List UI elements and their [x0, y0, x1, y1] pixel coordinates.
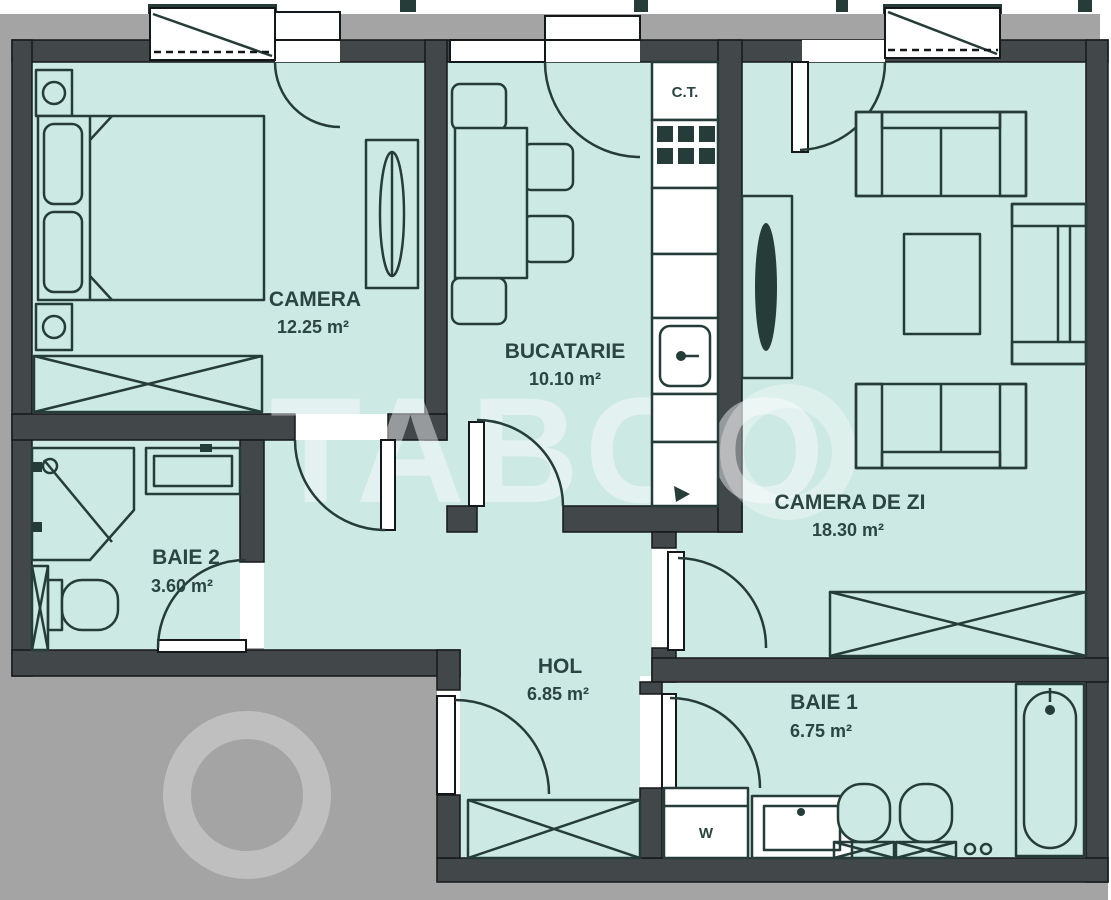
room-label-camera: CAMERA	[269, 288, 361, 311]
washing-machine	[664, 788, 748, 858]
entrance-door-leaf	[437, 696, 455, 794]
baie1-toilet-bowl	[838, 784, 890, 842]
stove-burner-5	[678, 148, 694, 164]
camera-door-gap	[275, 40, 340, 62]
stove-burner-4	[657, 148, 673, 164]
facade-nub-3	[836, 0, 848, 12]
kitchen-chair-right-2	[523, 216, 573, 262]
wall-hol-living-upper	[652, 532, 676, 548]
wall-baie2-bottom	[12, 650, 460, 676]
wall-corridor-left-upper	[437, 650, 460, 690]
facade-nub-1	[400, 0, 416, 12]
wall-living-baie1	[652, 658, 1108, 682]
coffee-table	[904, 234, 980, 334]
baie2-toilet-tank	[48, 580, 62, 630]
room-label-baie1: BAIE 1	[790, 691, 858, 714]
floor-plan: TABOO	[0, 0, 1111, 900]
kitchen-window	[450, 40, 545, 62]
tv-symbol	[755, 223, 777, 351]
facade-nub-2	[634, 0, 648, 12]
room-area-camera-de-zi: 18.30 m²	[812, 520, 884, 540]
kitchen-door-gap	[545, 40, 640, 62]
kitchen-counter-1	[652, 188, 718, 254]
wall-baie2-right	[240, 440, 264, 562]
room-label-hol: HOL	[538, 655, 583, 678]
stove-burner-2	[678, 126, 694, 142]
kitchen-chair-right-1	[523, 144, 573, 190]
camera-balcony-door-leaf	[275, 12, 340, 40]
room-area-camera: 12.25 m²	[277, 317, 349, 337]
room-label-camera-de-zi: CAMERA DE ZI	[775, 491, 926, 514]
floor-plan-page: TABOO	[0, 0, 1111, 900]
baie1-vanity-faucet	[797, 808, 805, 816]
kitchen-counter-2	[652, 254, 718, 318]
room-label-bucatarie: BUCATARIE	[505, 340, 626, 363]
washing-machine-label: W	[699, 825, 714, 842]
wall-camera-bottom-left	[12, 414, 295, 440]
armchair	[1012, 204, 1086, 364]
floor-living-ext	[676, 532, 742, 658]
baie1-bidet-bowl	[900, 784, 952, 842]
wall-left	[12, 40, 32, 676]
living-balcony-door-leaf	[792, 62, 808, 152]
baie2-pipe-nub-1	[32, 462, 42, 472]
wall-bottom	[437, 858, 1108, 882]
hol-furniture	[468, 800, 640, 858]
living-door-gap	[802, 40, 885, 62]
bathtub-drain	[1045, 705, 1055, 715]
kitchen-chair-top	[452, 84, 506, 130]
baie2-door-leaf	[158, 640, 246, 652]
bed-symbol	[38, 116, 264, 300]
baie1-door-leaf	[662, 694, 676, 788]
wall-corridor-left-lower	[437, 795, 460, 858]
stove-burner-6	[699, 148, 715, 164]
baie2-sink-faucet	[200, 444, 212, 452]
room-area-bucatarie: 10.10 m²	[529, 369, 601, 389]
kitchen-table	[455, 128, 527, 278]
kitchen-door-leaf	[469, 422, 484, 506]
wall-right	[1086, 40, 1108, 882]
wall-baie1-left-upper	[640, 682, 662, 694]
stove-burner-1	[657, 126, 673, 142]
living-door-leaf	[668, 552, 684, 650]
baie2-pipe-nub-2	[32, 522, 42, 532]
stove-burner-3	[699, 126, 715, 142]
kitchen-counter-3	[652, 394, 718, 442]
wall-baie1-left-lower	[640, 788, 662, 858]
boiler-label: C.T.	[672, 84, 699, 101]
baie2-toilet-bowl	[62, 580, 118, 630]
room-area-baie2: 3.60 m²	[151, 576, 213, 596]
kitchen-balcony-door-leaf	[545, 16, 640, 40]
kitchen-chair-bottom	[452, 278, 506, 324]
room-area-baie1: 6.75 m²	[790, 721, 852, 741]
watermark-text: TABOO	[270, 366, 831, 534]
facade-nub-4	[1078, 0, 1092, 12]
room-label-baie2: BAIE 2	[152, 546, 220, 569]
camera-door-leaf	[381, 440, 395, 530]
room-area-hol: 6.85 m²	[527, 684, 589, 704]
